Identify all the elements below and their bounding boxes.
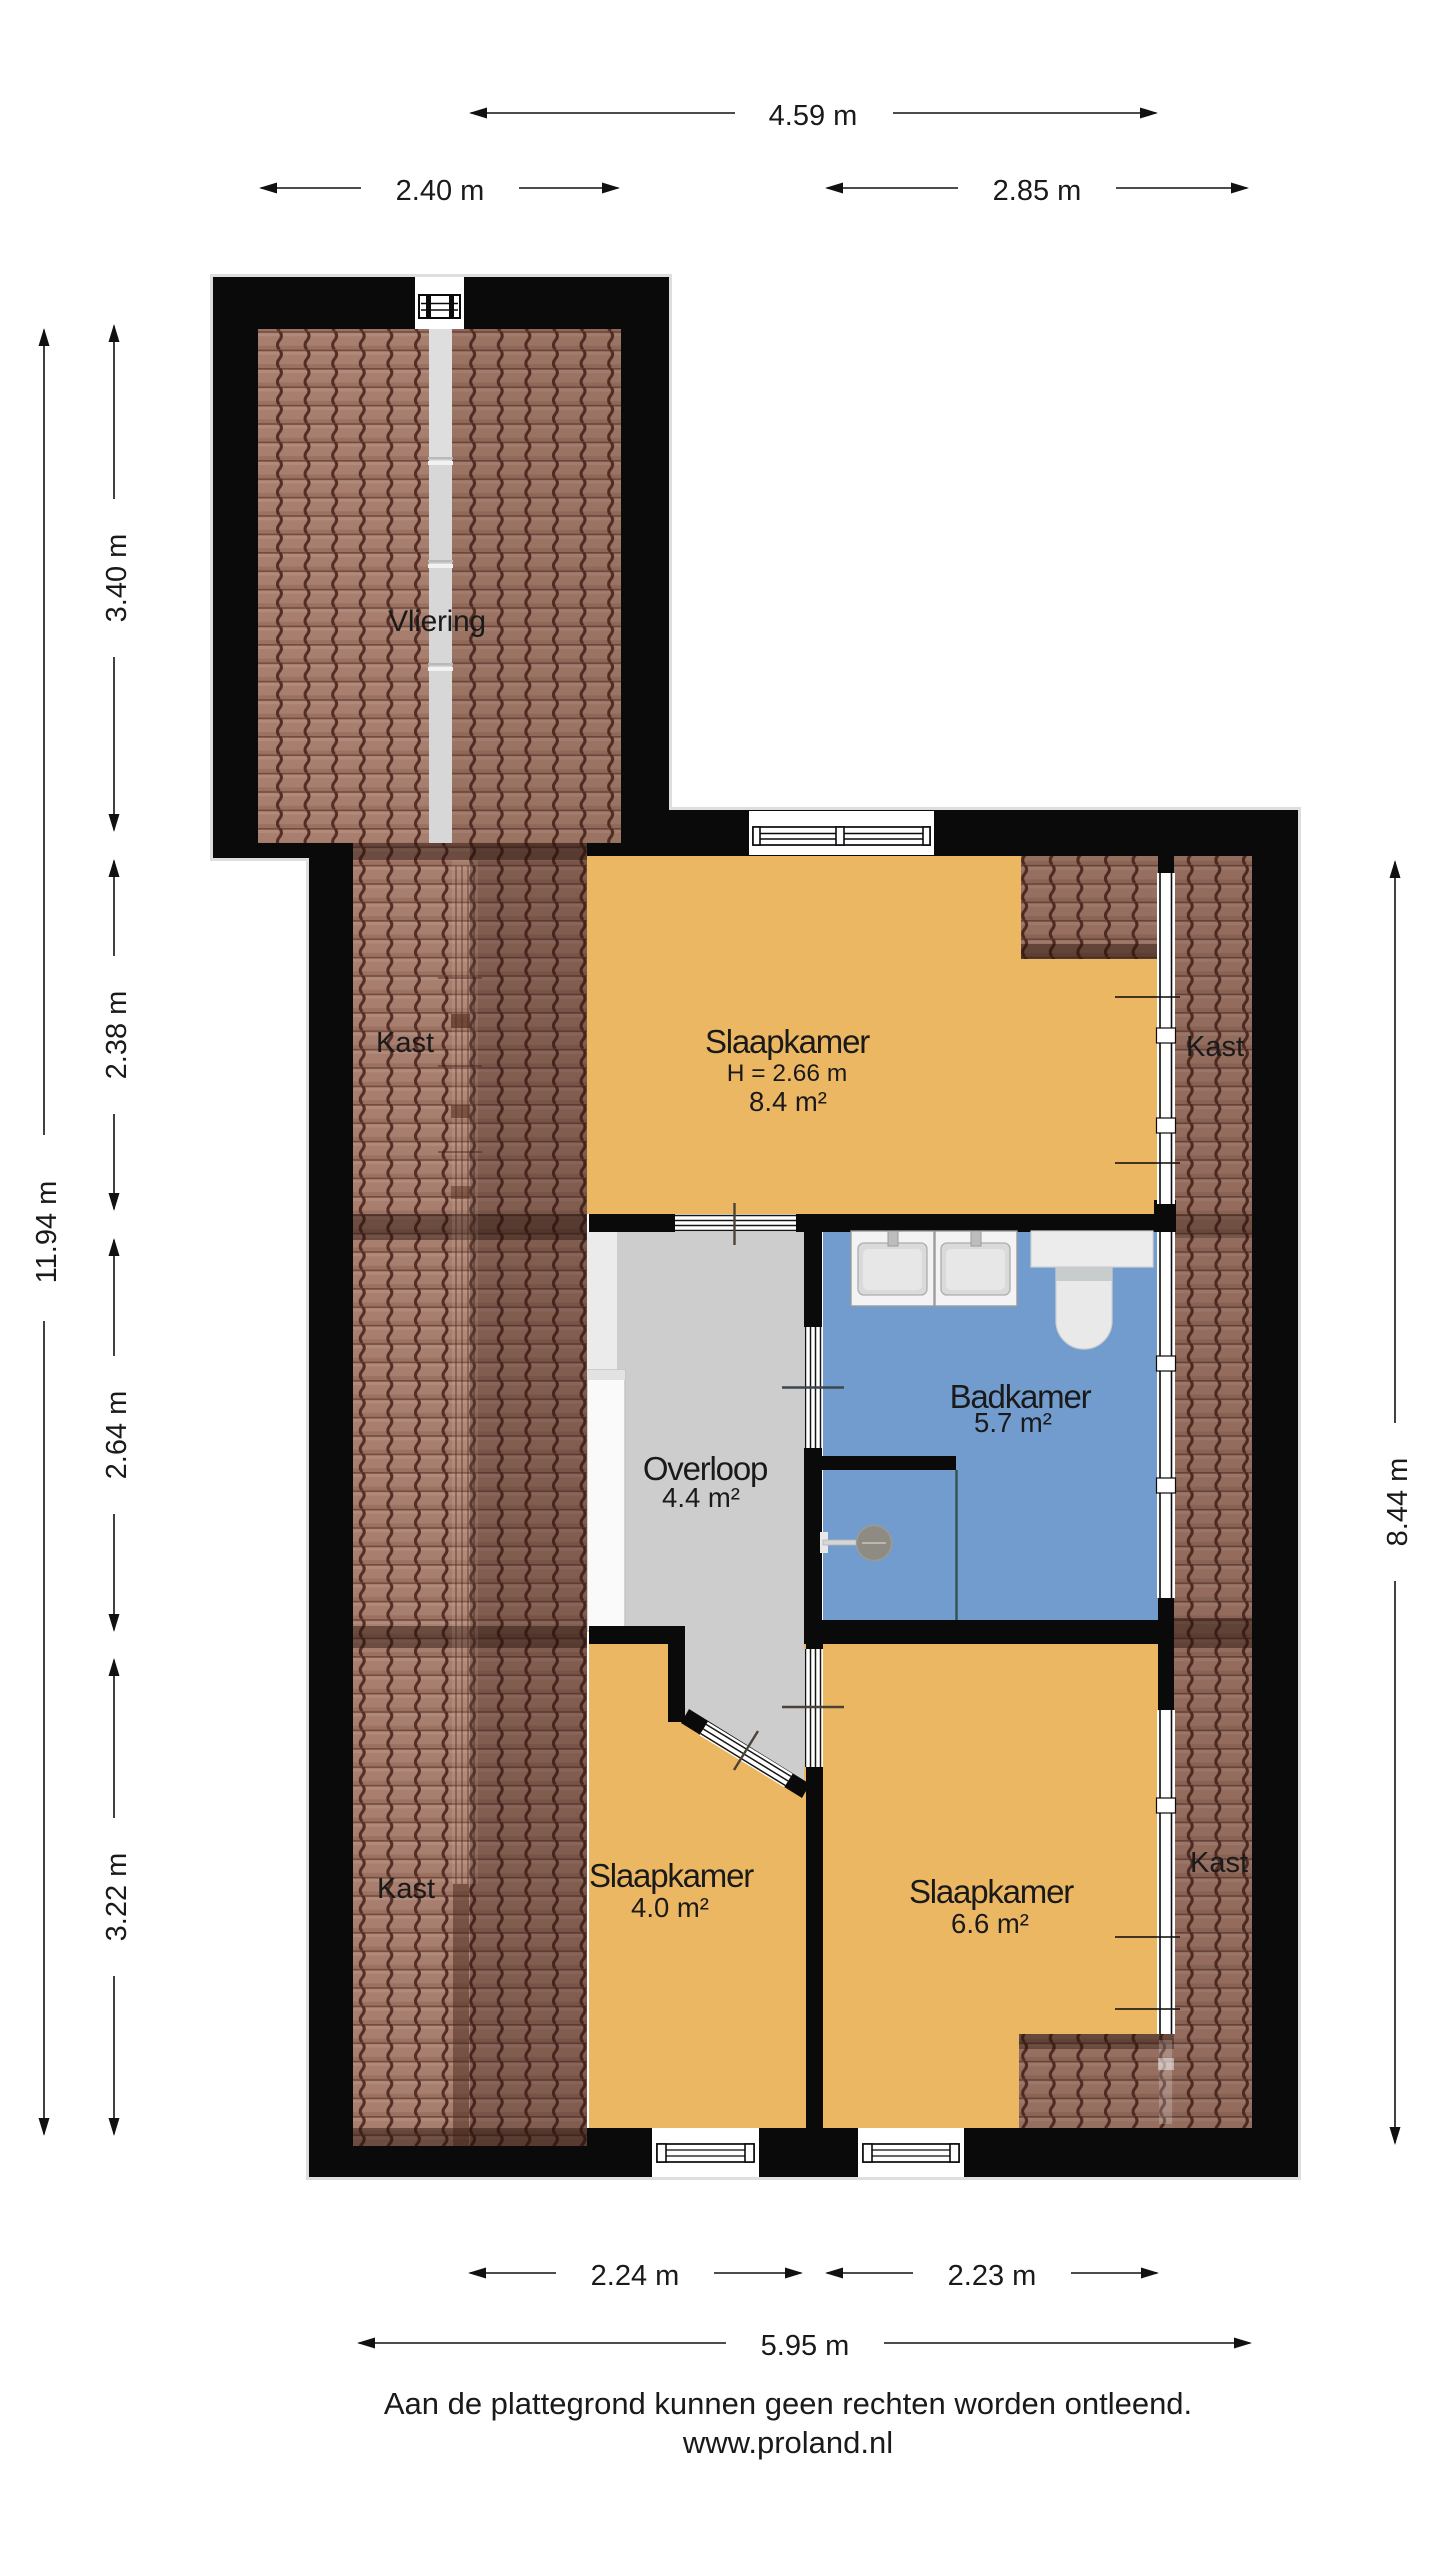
svg-text:4.4 m²: 4.4 m² xyxy=(662,1482,740,1513)
svg-text:5.95 m: 5.95 m xyxy=(761,2330,850,2362)
svg-text:2.85 m: 2.85 m xyxy=(993,175,1082,207)
svg-text:Slaapkamer: Slaapkamer xyxy=(589,1857,754,1894)
svg-text:11.94 m: 11.94 m xyxy=(31,1181,63,1284)
svg-text:3.40 m: 3.40 m xyxy=(101,534,133,623)
svg-text:Aan de plattegrond kunnen geen: Aan de plattegrond kunnen geen rechten w… xyxy=(384,2386,1192,2421)
svg-text:2.40 m: 2.40 m xyxy=(396,175,485,207)
svg-text:4.59 m: 4.59 m xyxy=(769,100,858,132)
svg-text:4.0 m²: 4.0 m² xyxy=(631,1892,709,1923)
svg-text:H = 2.66 m: H = 2.66 m xyxy=(727,1060,848,1087)
svg-text:2.24 m: 2.24 m xyxy=(591,2260,680,2292)
svg-text:8.4 m²: 8.4 m² xyxy=(749,1086,827,1117)
svg-text:Slaapkamer: Slaapkamer xyxy=(909,1873,1074,1910)
svg-text:Kast: Kast xyxy=(1190,1847,1248,1879)
svg-text:2.38 m: 2.38 m xyxy=(101,991,133,1080)
svg-text:Vliering: Vliering xyxy=(388,605,486,638)
svg-text:Kast: Kast xyxy=(376,1027,434,1059)
svg-text:Kast: Kast xyxy=(1186,1031,1244,1063)
svg-text:5.7 m²: 5.7 m² xyxy=(974,1407,1052,1438)
svg-text:Kast: Kast xyxy=(377,1873,435,1905)
svg-text:www.proland.nl: www.proland.nl xyxy=(682,2425,893,2460)
svg-text:2.64 m: 2.64 m xyxy=(101,1391,133,1480)
svg-text:3.22 m: 3.22 m xyxy=(101,1853,133,1942)
svg-text:2.23 m: 2.23 m xyxy=(948,2260,1037,2292)
svg-text:6.6 m²: 6.6 m² xyxy=(951,1908,1029,1939)
svg-text:8.44 m: 8.44 m xyxy=(1382,1458,1414,1547)
svg-text:Slaapkamer: Slaapkamer xyxy=(705,1023,870,1060)
